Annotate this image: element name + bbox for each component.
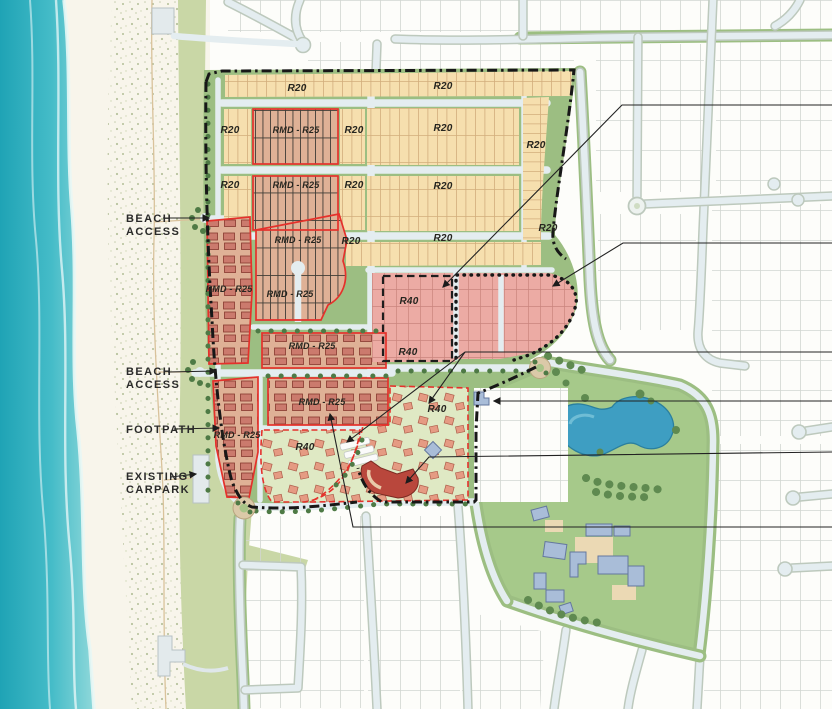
zone-label: R40 [428,404,447,415]
zone-label: RMD - R25 [267,289,315,299]
side-label-beach-access-1: BEACHACCESS [126,213,180,238]
zone-label: R20 [434,81,453,92]
zone-label: R20 [345,180,364,191]
zone-label: RMD - R25 [299,397,347,407]
zone-label: RMD - R25 [289,341,337,351]
zone-label: R20 [434,181,453,192]
zone-label: RMD - R25 [273,180,321,190]
side-label-existing-carpark: EXISTINGCARPARK [126,471,190,496]
zone-label: R40 [399,347,418,358]
zone-label: R20 [221,180,240,191]
structure-plan-map: R20R20R20RMD - R25R20R20R20R20RMD - R25R… [0,0,832,709]
zone-label: R20 [288,83,307,94]
zone-label: R20 [221,125,240,136]
top-carpark [152,8,174,34]
zone-label: RMD - R25 [206,284,254,294]
zone-label: RMD - R25 [273,125,321,135]
lake [556,397,674,456]
zone-label: R20 [527,140,546,151]
zone-label: R40 [296,442,315,453]
zone-label: R20 [342,236,361,247]
zone-label: R20 [345,125,364,136]
plan-canvas: R20R20R20RMD - R25R20R20R20R20RMD - R25R… [0,0,832,709]
zone-label: RMD - R25 [214,430,262,440]
side-label-beach-access-2: BEACHACCESS [126,366,180,391]
zone-label: R20 [434,233,453,244]
zone-label: R20 [434,123,453,134]
zone-label: R40 [400,296,419,307]
zone-label: R20 [539,223,558,234]
side-label-footpath: FOOTPATH [126,424,196,436]
zone-label: RMD - R25 [275,235,323,245]
